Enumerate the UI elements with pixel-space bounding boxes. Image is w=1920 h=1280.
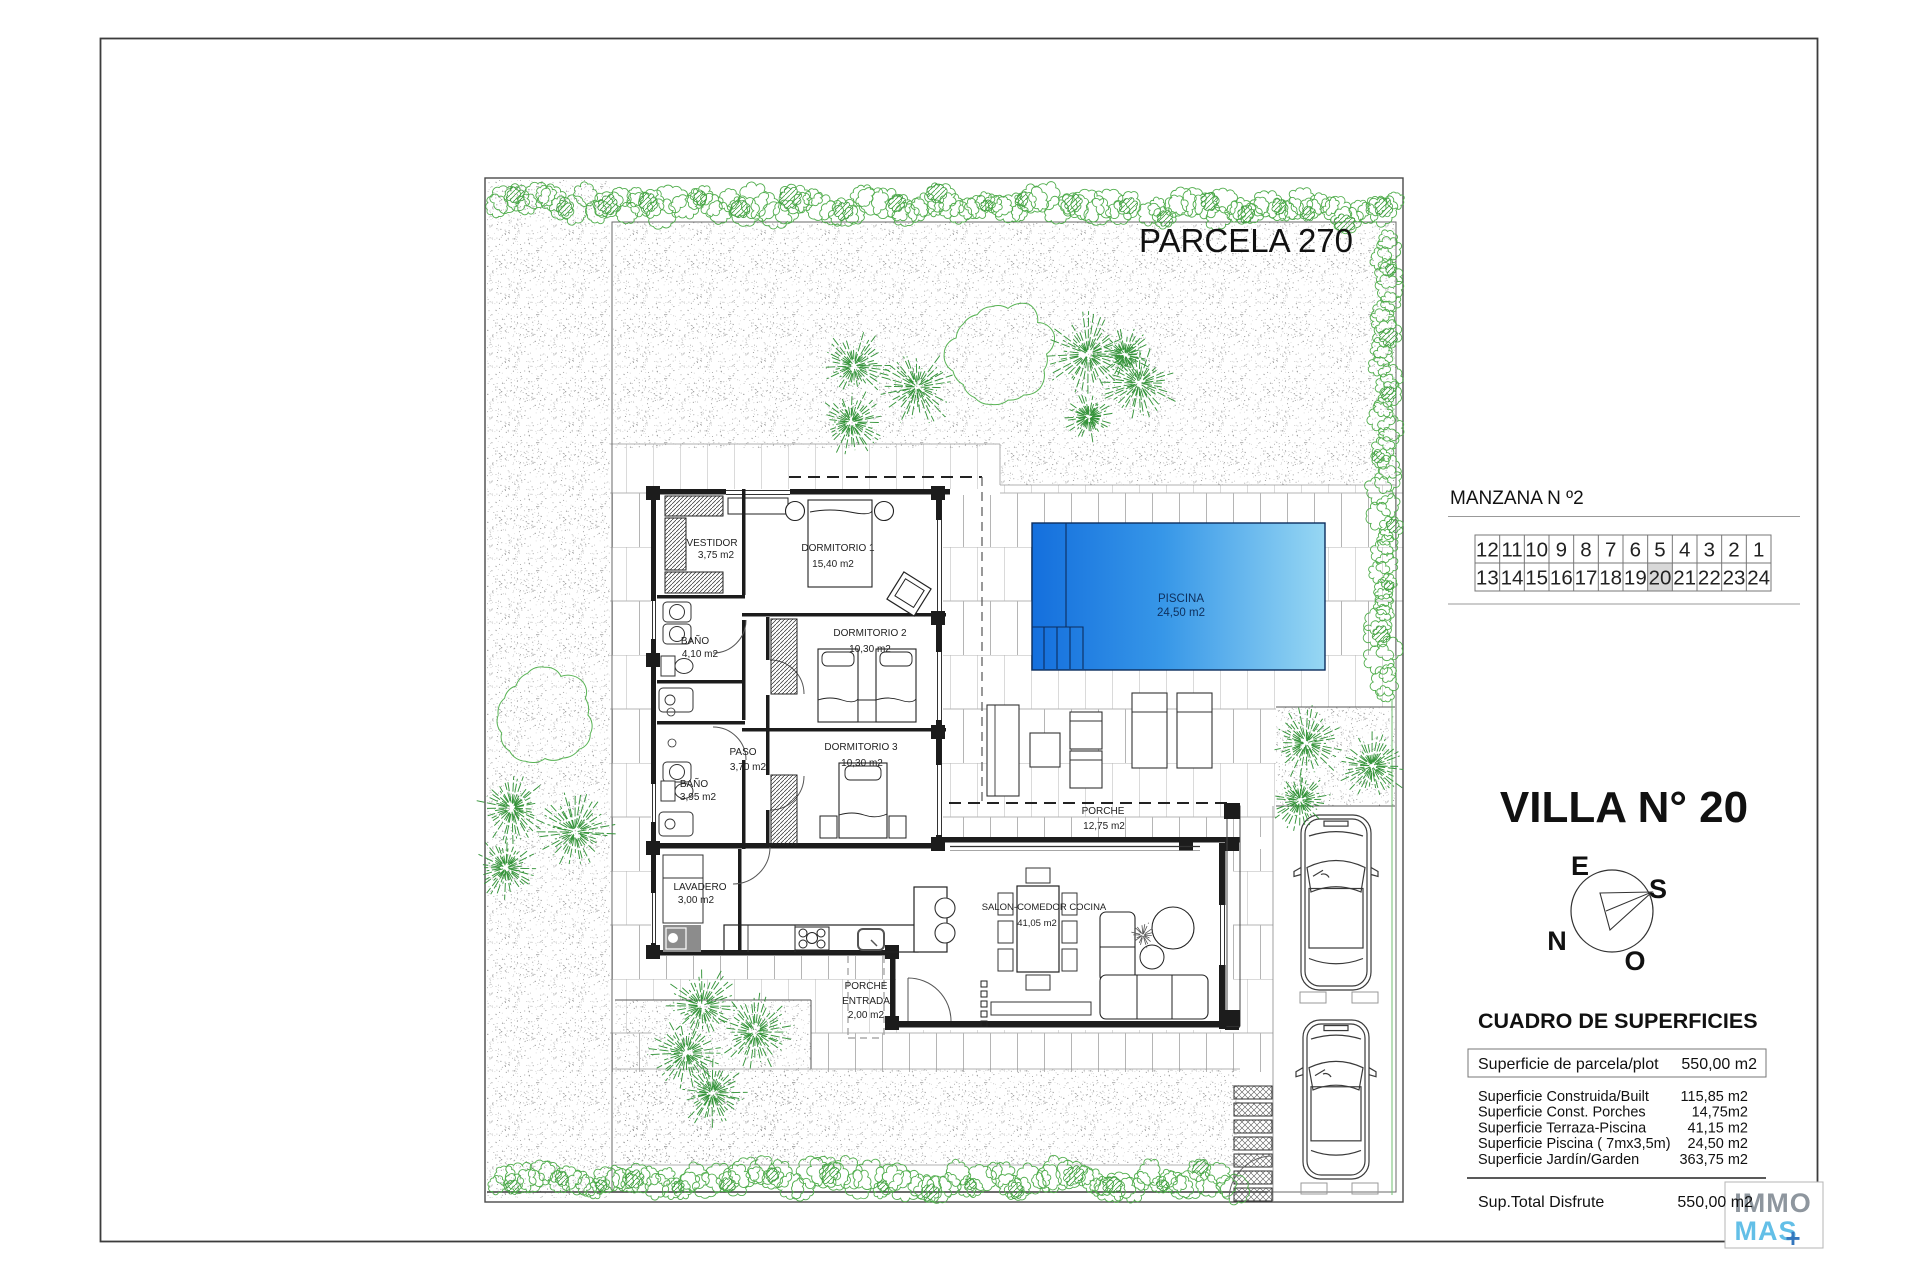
svg-text:13: 13 xyxy=(1476,567,1499,590)
svg-text:19: 19 xyxy=(1624,567,1647,590)
svg-text:12: 12 xyxy=(1476,539,1499,562)
svg-text:363,75 m2: 363,75 m2 xyxy=(1679,1152,1748,1168)
svg-text:VESTIDOR: VESTIDOR xyxy=(686,538,737,549)
svg-text:11: 11 xyxy=(1501,539,1522,562)
svg-text:BAÑO: BAÑO xyxy=(681,634,710,647)
svg-text:+: + xyxy=(1785,1223,1800,1253)
svg-text:24,50 m2: 24,50 m2 xyxy=(1157,607,1205,619)
svg-text:5: 5 xyxy=(1654,539,1665,562)
svg-text:41,15 m2: 41,15 m2 xyxy=(1688,1120,1748,1136)
svg-text:15,40 m2: 15,40 m2 xyxy=(812,559,854,570)
svg-text:15: 15 xyxy=(1525,567,1548,590)
svg-text:PARCELA 270: PARCELA 270 xyxy=(1139,222,1353,259)
svg-text:Superficie Terraza-Piscina: Superficie Terraza-Piscina xyxy=(1478,1120,1647,1136)
svg-text:20: 20 xyxy=(1649,567,1672,590)
svg-text:14,75m2: 14,75m2 xyxy=(1692,1105,1748,1121)
svg-text:17: 17 xyxy=(1575,567,1598,590)
svg-text:10,30 m2: 10,30 m2 xyxy=(849,644,891,655)
svg-text:550,00 m2: 550,00 m2 xyxy=(1681,1056,1757,1073)
svg-text:E: E xyxy=(1571,851,1589,881)
svg-text:PORCHE: PORCHE xyxy=(1082,806,1125,817)
svg-text:CUADRO DE SUPERFICIES: CUADRO DE SUPERFICIES xyxy=(1478,1009,1758,1033)
svg-text:8: 8 xyxy=(1580,539,1591,562)
svg-text:10: 10 xyxy=(1525,539,1548,562)
svg-text:ENTRADA: ENTRADA xyxy=(842,996,890,1007)
svg-text:Superficie Const. Porches: Superficie Const. Porches xyxy=(1478,1105,1646,1121)
svg-text:10,30 m2: 10,30 m2 xyxy=(841,758,883,769)
svg-text:N: N xyxy=(1547,926,1567,956)
svg-text:12,75 m2: 12,75 m2 xyxy=(1083,821,1125,832)
svg-text:S: S xyxy=(1649,874,1667,904)
svg-text:DORMITORIO 1: DORMITORIO 1 xyxy=(801,543,875,554)
svg-text:16: 16 xyxy=(1550,567,1573,590)
svg-text:24,50 m2: 24,50 m2 xyxy=(1688,1136,1748,1152)
svg-text:24: 24 xyxy=(1747,567,1770,590)
svg-text:115,85 m2: 115,85 m2 xyxy=(1681,1089,1748,1105)
svg-text:Superficie Piscina ( 7mx3,5m): Superficie Piscina ( 7mx3,5m) xyxy=(1478,1136,1671,1152)
svg-text:PORCHE: PORCHE xyxy=(845,981,888,992)
svg-text:BAÑO: BAÑO xyxy=(680,777,709,790)
svg-text:21: 21 xyxy=(1673,567,1696,590)
svg-text:2,00 m2: 2,00 m2 xyxy=(848,1010,885,1021)
svg-text:4: 4 xyxy=(1679,539,1690,562)
svg-text:3: 3 xyxy=(1704,539,1715,562)
svg-text:9: 9 xyxy=(1556,539,1567,562)
svg-text:Sup.Total Disfrute: Sup.Total Disfrute xyxy=(1478,1194,1604,1211)
svg-text:LAVADERO: LAVADERO xyxy=(674,882,727,893)
svg-text:2: 2 xyxy=(1728,539,1739,562)
svg-text:MANZANA N º2: MANZANA N º2 xyxy=(1450,488,1584,509)
svg-text:SALON-COMEDOR COCINA: SALON-COMEDOR COCINA xyxy=(982,902,1107,913)
svg-text:VILLA N° 20: VILLA N° 20 xyxy=(1500,783,1748,832)
svg-text:18: 18 xyxy=(1599,567,1622,590)
svg-text:3,95 m2: 3,95 m2 xyxy=(680,792,717,803)
svg-text:Superficie Construida/Built: Superficie Construida/Built xyxy=(1478,1089,1649,1105)
svg-text:O: O xyxy=(1624,946,1645,976)
svg-text:41,05 m2: 41,05 m2 xyxy=(1017,918,1057,929)
svg-text:7: 7 xyxy=(1605,539,1616,562)
svg-text:14: 14 xyxy=(1501,567,1524,590)
svg-text:PASO: PASO xyxy=(729,747,756,758)
svg-text:3,70 m2: 3,70 m2 xyxy=(730,762,767,773)
svg-text:3,00 m2: 3,00 m2 xyxy=(678,895,715,906)
svg-text:PISCINA: PISCINA xyxy=(1158,593,1204,605)
svg-text:550,00 m2: 550,00 m2 xyxy=(1677,1194,1753,1211)
svg-text:DORMITORIO 2: DORMITORIO 2 xyxy=(833,628,907,639)
svg-text:6: 6 xyxy=(1630,539,1641,562)
svg-text:Superficie de parcela/plot: Superficie de parcela/plot xyxy=(1478,1056,1659,1073)
svg-text:1: 1 xyxy=(1753,539,1764,562)
svg-text:DORMITORIO 3: DORMITORIO 3 xyxy=(824,742,898,753)
svg-text:4,10 m2: 4,10 m2 xyxy=(682,649,719,660)
svg-text:22: 22 xyxy=(1698,567,1721,590)
svg-text:3,75 m2: 3,75 m2 xyxy=(698,550,735,561)
svg-text:Superficie Jardín/Garden: Superficie Jardín/Garden xyxy=(1478,1152,1639,1168)
svg-text:23: 23 xyxy=(1723,567,1746,590)
